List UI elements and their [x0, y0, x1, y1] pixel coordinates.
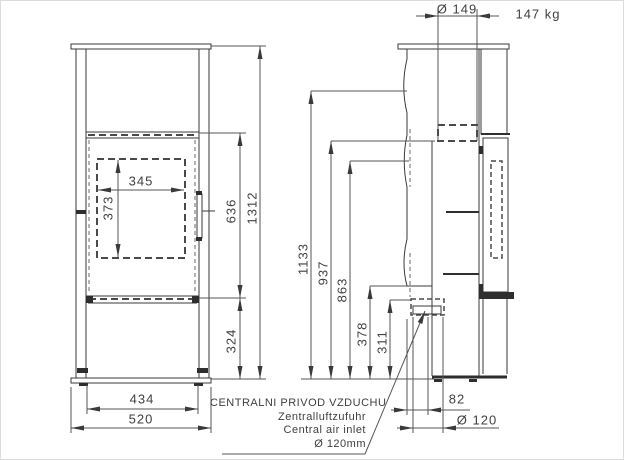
rear-lower-panel: [479, 138, 514, 299]
front-base-plinth: [71, 378, 211, 383]
air-inlet-note-line-en: Central air inlet: [210, 424, 366, 438]
weight-label: 147 kg: [515, 8, 560, 21]
drawing-linework: [1, 1, 624, 460]
door-hinge-mark: [76, 210, 86, 214]
dim-body-width-label: 434: [130, 393, 155, 406]
stove-dimensional-drawing: 345 373 636 1312 324 434 520 1133 937 86…: [0, 0, 624, 460]
front-top-plate: [71, 44, 211, 49]
dim-base-section-height-label: 324: [225, 329, 238, 354]
dim-height-863-label: 863: [336, 278, 349, 303]
air-inlet-note-line-size: Ø 120mm: [210, 438, 366, 452]
dim-height-937-label: 937: [317, 261, 330, 286]
flue-outlet-dashed: [438, 125, 477, 141]
front-door-sill-band: [86, 296, 199, 303]
front-view: [71, 44, 215, 386]
dim-firebox-width-label: 345: [129, 175, 154, 188]
air-inlet-note-line-sl: CENTRALNI PRIVOD VZDUCHU: [210, 397, 366, 411]
dim-overall-width-label: 520: [129, 413, 154, 426]
air-inlet-note: CENTRALNI PRIVOD VZDUCHU Zentralluftzufu…: [210, 397, 366, 451]
dim-inlet-diameter-label: Ø 120: [457, 414, 497, 427]
dim-firebox-height-label: 373: [102, 196, 115, 221]
air-inlet-stub: [413, 306, 441, 314]
door-handle: [196, 191, 215, 241]
dim-inlet-axis-height-label: 311: [376, 330, 389, 354]
side-top-plate: [398, 44, 509, 49]
dimension-arrowheads: [71, 14, 490, 431]
front-dimension-lines: [71, 46, 266, 433]
dim-overall-height-label: 1312: [246, 192, 259, 225]
dim-inlet-top-height-label: 378: [356, 322, 369, 347]
dim-door-section-height-label: 636: [225, 199, 238, 224]
air-inlet-dashed: [411, 299, 444, 315]
front-vent-band: [86, 132, 199, 138]
air-inlet-note-line-de: Zentralluftzufuhr: [210, 411, 366, 425]
dim-height-1133-label: 1133: [297, 243, 310, 275]
rear-upper-panel: [481, 49, 507, 134]
dim-inlet-offset-label: 82: [449, 393, 465, 406]
side-view: [398, 9, 514, 382]
dim-flue-diameter-label: Ø 149: [437, 3, 477, 16]
